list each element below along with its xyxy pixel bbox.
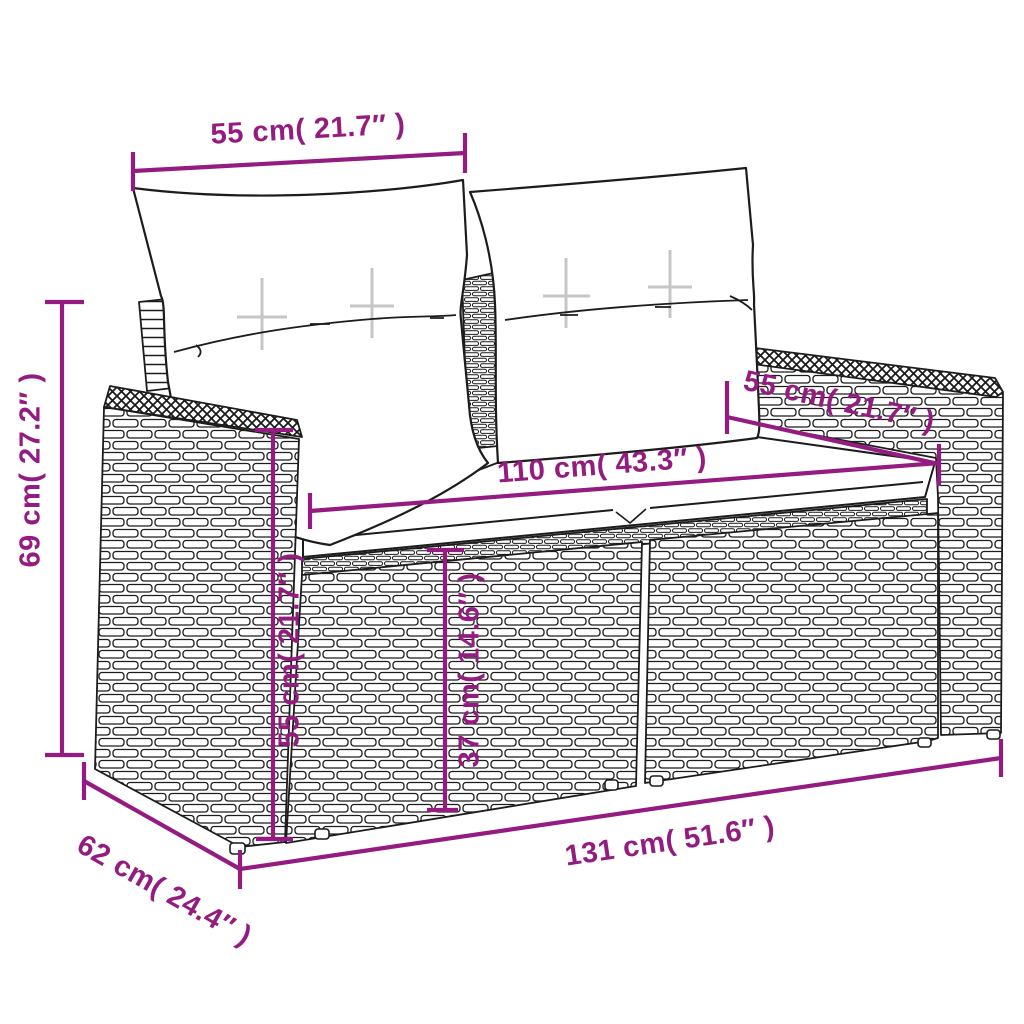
dim-line-total-height <box>45 302 84 755</box>
dim-label-arm-height: 55 cm( 21.7″ ) <box>274 553 307 748</box>
diagram-canvas: 55 cm( 21.7″ ) 69 cm( 27.2″ ) 55 cm( 21.… <box>0 0 1024 1024</box>
dim-label-total-height: 69 cm( 27.2″ ) <box>15 373 48 568</box>
seat-base <box>286 499 938 843</box>
dim-label-seat-height: 37 cm( 14.6″ ) <box>454 573 487 768</box>
right-back-pillow <box>470 168 759 463</box>
